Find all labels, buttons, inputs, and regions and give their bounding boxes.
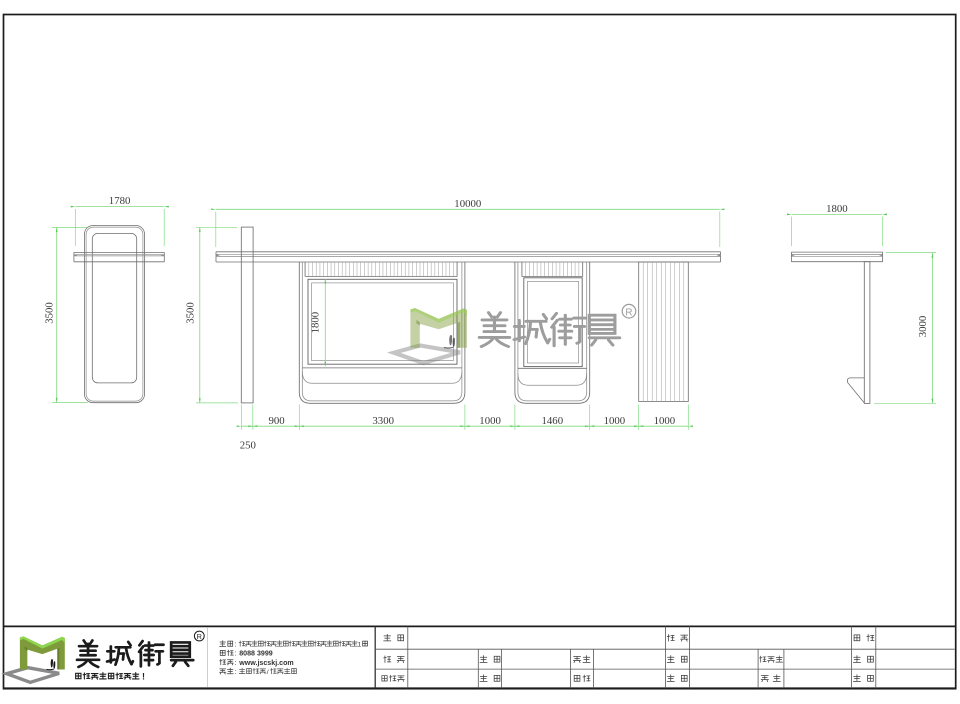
- svg-text:250: 250: [240, 440, 256, 452]
- svg-text:10000: 10000: [454, 198, 481, 210]
- svg-text:/: /: [267, 669, 269, 676]
- svg-text:900: 900: [268, 415, 284, 427]
- svg-text::: :: [234, 642, 236, 649]
- svg-text:1000: 1000: [479, 415, 501, 427]
- svg-text:3500: 3500: [44, 302, 56, 324]
- svg-text:1800: 1800: [826, 203, 848, 215]
- svg-text::: :: [234, 660, 236, 667]
- svg-text::: :: [234, 669, 236, 676]
- svg-text::: :: [234, 651, 236, 658]
- svg-text:www.jscskj.com: www.jscskj.com: [238, 659, 294, 667]
- svg-text:1000: 1000: [654, 415, 676, 427]
- svg-text:3500: 3500: [185, 302, 197, 324]
- svg-text:!: !: [142, 671, 145, 681]
- svg-text:1800: 1800: [310, 312, 322, 334]
- svg-text:R: R: [625, 307, 632, 318]
- svg-text:1460: 1460: [542, 415, 564, 427]
- svg-text:8088 3999: 8088 3999: [239, 650, 273, 658]
- svg-text:3300: 3300: [372, 415, 394, 427]
- svg-text:R: R: [197, 633, 202, 641]
- svg-text:1: 1: [357, 641, 361, 648]
- svg-text:1780: 1780: [109, 195, 131, 207]
- svg-text:3000: 3000: [917, 316, 929, 338]
- svg-text:1000: 1000: [604, 415, 626, 427]
